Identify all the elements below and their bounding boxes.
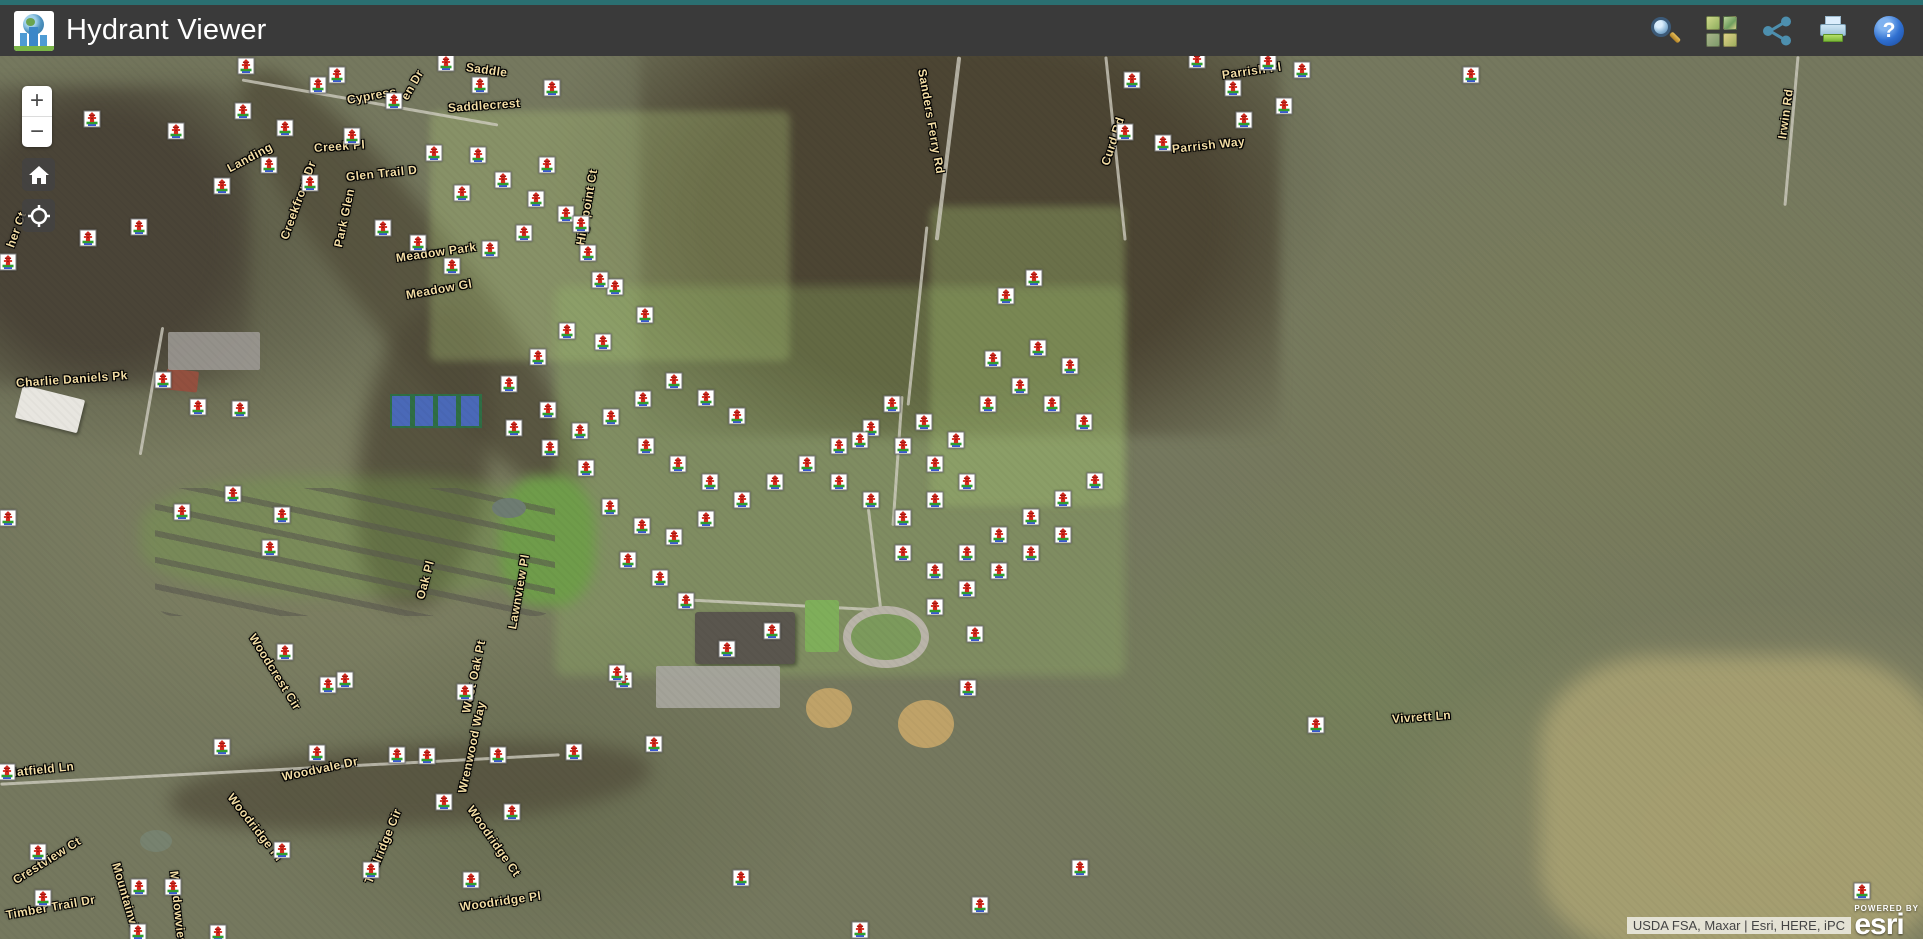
hydrant-marker[interactable] [566,744,583,761]
hydrant-icon [621,553,636,568]
hydrant-icon [896,439,911,454]
hydrant-icon [699,512,714,527]
hydrant-marker[interactable] [1236,112,1253,129]
hydrant-icon [593,273,608,288]
hydrant-marker[interactable] [670,456,687,473]
hydrant-marker[interactable] [277,644,294,661]
hydrant-icon [992,564,1007,579]
hydrant-marker[interactable] [1189,56,1206,69]
hydrant-icon [1309,718,1324,733]
hydrant-icon [303,176,318,191]
hydrant-marker[interactable] [927,492,944,509]
hydrant-icon [734,871,749,886]
hydrant-icon [1,511,16,526]
hydrant-icon [635,519,650,534]
hydrant-marker[interactable] [1124,72,1141,89]
hydrant-marker[interactable] [528,191,545,208]
hydrant-marker[interactable] [1225,80,1242,97]
hydrant-marker[interactable] [609,665,626,682]
hydrant-marker[interactable] [972,897,989,914]
hydrant-marker[interactable] [1276,98,1293,115]
hydrant-marker[interactable] [960,680,977,697]
hydrant-marker[interactable] [602,499,619,516]
hydrant-marker[interactable] [998,288,1015,305]
basemap-gallery-icon[interactable] [1705,15,1737,47]
hydrant-marker[interactable] [733,870,750,887]
hydrant-marker[interactable] [210,925,227,939]
hydrant-icon [960,546,975,561]
hydrant-icon [166,880,181,895]
hydrant-marker[interactable] [1294,62,1311,79]
hydrant-marker[interactable] [764,623,781,640]
hydrant-marker[interactable] [852,922,869,939]
hydrant-icon [1464,68,1479,83]
hydrant-marker[interactable] [895,510,912,527]
hydrant-marker[interactable] [927,456,944,473]
hydrant-marker[interactable] [607,279,624,296]
hydrant-icon [636,392,651,407]
hydrant-icon [169,124,184,139]
hydrant-marker[interactable] [580,245,597,262]
hydrant-icon [981,397,996,412]
hydrant-marker[interactable] [1260,56,1277,71]
hydrant-marker[interactable] [274,842,291,859]
hydrant-marker[interactable] [262,540,279,557]
hydrant-marker[interactable] [0,254,17,271]
hydrant-marker[interactable] [1117,124,1134,141]
hydrant-icon [1118,125,1133,140]
hydrant-icon [236,104,251,119]
hydrant-marker[interactable] [310,77,327,94]
hydrant-marker[interactable] [637,307,654,324]
hydrant-marker[interactable] [1044,396,1061,413]
hydrant-marker[interactable] [729,408,746,425]
hydrant-icon [81,231,96,246]
hydrant-icon [132,220,147,235]
hydrant-marker[interactable] [1076,414,1093,431]
hydrant-marker[interactable] [980,396,997,413]
hydrant-marker[interactable] [80,230,97,247]
hydrant-marker[interactable] [831,438,848,455]
hydrant-icon [439,56,454,71]
hydrant-icon [1125,73,1140,88]
hydrant-marker[interactable] [470,147,487,164]
hydrant-marker[interactable] [530,349,547,366]
hydrant-icon [437,795,452,810]
hydrant-icon [573,424,588,439]
hydrant-icon [735,493,750,508]
hydrant-icon [604,410,619,425]
hydrant-icon [864,493,879,508]
hydrant-marker[interactable] [578,460,595,477]
hydrant-marker[interactable] [959,545,976,562]
hydrant-marker[interactable] [0,510,17,527]
hydrant-marker[interactable] [959,474,976,491]
hydrant-icon [275,508,290,523]
help-icon[interactable]: ? [1873,15,1905,47]
hydrant-icon [1088,474,1103,489]
hydrant-marker[interactable] [734,492,751,509]
hydrant-marker[interactable] [501,376,518,393]
hydrant-icon [720,642,735,657]
hydrant-viewer-app: Hydrant Viewer ? [0,0,1923,939]
hydrant-marker[interactable] [767,474,784,491]
hydrant-marker[interactable] [620,552,637,569]
hydrant-icon [471,148,486,163]
hydrant-marker[interactable] [490,747,507,764]
hydrant-icon [445,259,460,274]
hydrant-icon [529,192,544,207]
hydrant-icon [853,433,868,448]
hydrant-icon [85,112,100,127]
hydrant-icon [491,748,506,763]
hydrant-icon [1295,63,1310,78]
hydrant-icon [1190,56,1205,68]
hydrant-icon [1027,271,1042,286]
hydrant-marker[interactable] [634,518,651,535]
hydrant-icon [560,324,575,339]
hydrant-marker[interactable] [595,334,612,351]
hydrant-marker[interactable] [544,80,561,97]
hydrant-icon [278,121,293,136]
hydrant-icon [765,624,780,639]
hydrant-marker[interactable] [863,492,880,509]
hydrant-icon [832,439,847,454]
hydrant-icon [507,421,522,436]
hydrant-marker[interactable] [438,56,455,72]
my-location-button[interactable] [22,199,55,232]
hydrant-icon [896,546,911,561]
hydrant-marker[interactable] [214,739,231,756]
hydrant-marker[interactable] [274,507,291,524]
hydrant-marker[interactable] [702,474,719,491]
hydrant-marker[interactable] [472,77,489,94]
hydrant-marker[interactable] [235,103,252,120]
print-icon[interactable] [1817,15,1849,47]
hydrant-icon [917,415,932,430]
hydrant-marker[interactable] [666,529,683,546]
hydrant-marker[interactable] [84,111,101,128]
hydrant-icon [427,146,442,161]
hydrant-icon [699,391,714,406]
hydrant-icon [505,805,520,820]
hydrant-icon [853,923,868,938]
hydrant-marker[interactable] [436,794,453,811]
hydrant-marker[interactable] [1023,545,1040,562]
hydrant-icon [1073,861,1088,876]
zoom-control: + − [22,86,52,147]
hydrant-marker[interactable] [410,235,427,252]
hydrant-icon [330,68,345,83]
hydrant-icon [639,439,654,454]
app-header: Hydrant Viewer ? [0,5,1923,56]
hydrant-marker[interactable] [539,157,556,174]
hydrant-icon [387,94,402,109]
hydrant-icon [768,475,783,490]
hydrant-marker[interactable] [320,677,337,694]
hydrant-icon [1077,415,1092,430]
hydrant-marker[interactable] [1087,473,1104,490]
hydrant-marker[interactable] [1026,270,1043,287]
hydrant-marker[interactable] [559,323,576,340]
hydrant-marker[interactable] [190,399,207,416]
hydrant-icon [455,186,470,201]
hydrant-marker[interactable] [463,872,480,889]
hydrant-icon [603,500,618,515]
hydrant-icon [800,457,815,472]
hydrant-icon [226,487,241,502]
esri-brand: esri [1854,913,1919,937]
hydrant-marker[interactable] [592,272,609,289]
hydrant-marker[interactable] [329,67,346,84]
hydrant-marker[interactable] [540,402,557,419]
hydrant-icon [1277,99,1292,114]
hydrant-icon [263,541,278,556]
hydrant-icon [999,289,1014,304]
hydrant-icon [262,158,277,173]
hydrant-marker[interactable] [1072,860,1089,877]
hydrant-marker[interactable] [457,684,474,701]
hydrant-marker[interactable] [985,351,1002,368]
hydrant-icon [896,511,911,526]
hydrant-marker[interactable] [959,581,976,598]
hydrant-marker[interactable] [444,258,461,275]
hydrant-marker[interactable] [884,396,901,413]
hydrant-icon [986,352,1001,367]
hydrant-marker[interactable] [506,420,523,437]
hydrant-marker[interactable] [572,423,589,440]
hydrant-marker[interactable] [542,440,559,457]
hydrant-marker[interactable] [375,220,392,237]
hydrant-marker[interactable] [638,438,655,455]
hydrant-icon [1056,492,1071,507]
search-icon[interactable] [1649,15,1681,47]
hydrant-marker[interactable] [895,545,912,562]
hydrant-marker[interactable] [1463,67,1480,84]
hydrant-icon [671,457,686,472]
hydrant-marker[interactable] [225,486,242,503]
hydrant-icon [885,397,900,412]
hydrant-marker[interactable] [948,432,965,449]
hydrant-icon [559,207,574,222]
hydrant-icon [420,749,435,764]
hydrant-marker[interactable] [799,456,816,473]
hydrant-icon [545,81,560,96]
hydrant-icon [496,173,511,188]
hydrant-icon [596,335,611,350]
hydrant-icon [1056,528,1071,543]
hydrant-icon [390,748,405,763]
hydrant-marker[interactable] [573,216,590,233]
hydrant-marker[interactable] [1055,527,1072,544]
hydrant-marker[interactable] [214,178,231,195]
hydrant-icon [574,217,589,232]
hydrant-icon [581,246,596,261]
hydrant-marker[interactable] [1023,509,1040,526]
header-toolbar: ? [1649,15,1905,47]
hydrant-icon [131,925,146,939]
hydrant-marker[interactable] [927,563,944,580]
hydrant-marker[interactable] [895,438,912,455]
hydrant-marker[interactable] [1062,358,1079,375]
hydrant-marker[interactable] [131,879,148,896]
hydrant-icon [411,236,426,251]
hydrant-marker[interactable] [831,474,848,491]
hydrant-icon [311,78,326,93]
hydrant-marker[interactable] [426,145,443,162]
hydrant-marker[interactable] [261,157,278,174]
hydrant-marker[interactable] [927,599,944,616]
hydrant-icon [1024,510,1039,525]
hydrant-icon [703,475,718,490]
zoom-in-button[interactable]: + [22,86,52,116]
hydrant-icon [0,765,15,780]
hydrant-icon [239,59,254,74]
hydrant-icon [1226,81,1241,96]
hydrant-icon [1855,884,1870,899]
hydrant-icon [579,461,594,476]
map-canvas[interactable]: Cypressen DrSaddleSaddlecrestCreek PlLan… [0,56,1923,939]
hydrant-icon [679,594,694,609]
hydrant-marker[interactable] [35,890,52,907]
hydrant-marker[interactable] [30,844,47,861]
hydrant-marker[interactable] [991,527,1008,544]
hydrant-icon [667,530,682,545]
hydrant-marker[interactable] [1055,491,1072,508]
hydrant-icon [175,505,190,520]
hydrant-marker[interactable] [698,511,715,528]
hydrant-icon [502,377,517,392]
hydrant-marker[interactable] [1012,378,1029,395]
hydrant-icon [928,600,943,615]
share-icon[interactable] [1761,15,1793,47]
hydrant-marker[interactable] [277,120,294,137]
hydrant-marker[interactable] [0,764,16,781]
hydrant-icon [458,685,473,700]
hydrant-marker[interactable] [646,736,663,753]
hydrant-marker[interactable] [386,93,403,110]
home-icon [29,166,49,184]
hydrant-marker[interactable] [852,432,869,449]
hydrant-icon [1063,359,1078,374]
hydrant-icon [132,880,147,895]
hydrant-icon [211,926,226,939]
hydrant-marker[interactable] [1155,135,1172,152]
hydrant-icon [1013,379,1028,394]
hydrant-icon [156,373,171,388]
hydrant-icon [464,873,479,888]
hydrant-icon [968,627,983,642]
hydrant-icon [1045,397,1060,412]
hydrant-marker[interactable] [165,879,182,896]
hydrant-icon [1,255,16,270]
hydrant-icon [1261,56,1276,70]
hydrant-icon [610,666,625,681]
hydrant-marker[interactable] [504,804,521,821]
hydrant-marker[interactable] [516,225,533,242]
home-extent-button[interactable] [22,158,55,191]
hydrant-marker[interactable] [603,409,620,426]
hydrant-icon [960,582,975,597]
hydrant-icon [541,403,556,418]
hydrant-marker[interactable] [389,747,406,764]
hydrant-marker[interactable] [454,185,471,202]
page-title: Hydrant Viewer [66,14,267,47]
hydrant-icon [215,740,230,755]
hydrant-icon [517,226,532,241]
hydrant-marker[interactable] [232,401,249,418]
hydrant-icon [647,737,662,752]
hydrant-marker[interactable] [363,862,380,879]
hydrant-marker[interactable] [678,593,695,610]
hydrant-marker[interactable] [1030,340,1047,357]
hydrant-marker[interactable] [344,128,361,145]
zoom-out-button[interactable]: − [22,117,52,147]
hydrant-marker[interactable] [482,241,499,258]
hydrant-marker[interactable] [1308,717,1325,734]
hydrant-icon [483,242,498,257]
hydrant-icon [928,457,943,472]
hydrant-marker[interactable] [419,748,436,765]
hydrant-icon [928,493,943,508]
hydrant-marker[interactable] [238,58,255,75]
hydrant-marker[interactable] [130,924,147,939]
hydrant-icon [215,179,230,194]
hydrant-icon [973,898,988,913]
hydrant-marker[interactable] [309,745,326,762]
hydrant-marker[interactable] [174,504,191,521]
map-attribution: USDA FSA, Maxar | Esri, HERE, iPC [1627,917,1851,934]
hydrant-icon [376,221,391,236]
hydrant-icon [310,746,325,761]
hydrant-marker[interactable] [635,391,652,408]
hydrant-icon [531,350,546,365]
hydrant-icon [608,280,623,295]
hydrant-icon [1156,136,1171,151]
hydrant-marker[interactable] [1854,883,1871,900]
hydrant-icon [473,78,488,93]
hydrant-icon [275,843,290,858]
hydrant-marker[interactable] [302,175,319,192]
hydrant-marker[interactable] [652,570,669,587]
hydrant-icon [31,845,46,860]
hydrant-icon [1237,113,1252,128]
hydrant-marker[interactable] [666,373,683,390]
hydrant-icon [36,891,51,906]
hydrant-marker[interactable] [698,390,715,407]
hydrant-marker[interactable] [719,641,736,658]
hydrant-icon [1031,341,1046,356]
hydrant-marker[interactable] [168,123,185,140]
esri-logo: POWERED BY esri [1854,904,1919,937]
hydrant-icon [992,528,1007,543]
hydrant-marker[interactable] [155,372,172,389]
hydrant-marker[interactable] [991,563,1008,580]
hydrant-marker[interactable] [916,414,933,431]
hydrant-icon [540,158,555,173]
hydrant-icon [960,475,975,490]
hydrant-icon [338,673,353,688]
hydrant-marker[interactable] [337,672,354,689]
hydrant-marker[interactable] [495,172,512,189]
hydrant-icon [832,475,847,490]
hydrant-icon [961,681,976,696]
hydrant-icon [543,441,558,456]
locate-icon [28,205,50,227]
hydrant-icon [321,678,336,693]
hydrant-marker[interactable] [967,626,984,643]
hydrant-marker[interactable] [131,219,148,236]
